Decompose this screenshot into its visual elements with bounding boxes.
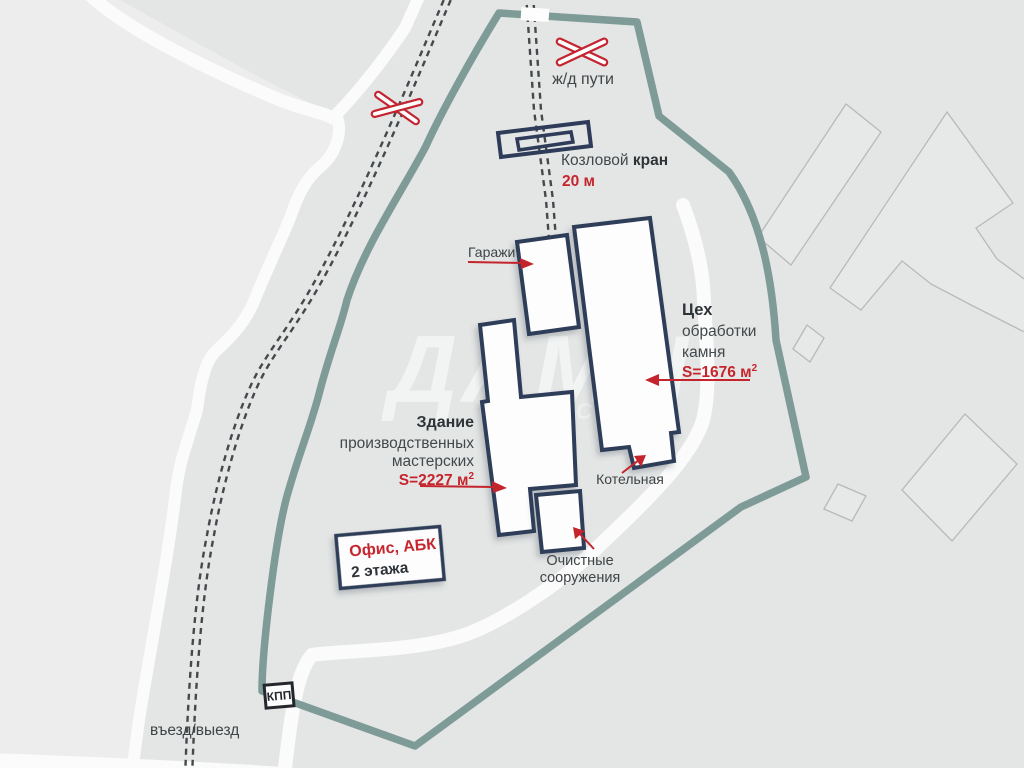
svg-text:Очистные: Очистные bbox=[546, 553, 613, 569]
svg-text:обработки: обработки bbox=[682, 323, 756, 340]
svg-text:КПП: КПП bbox=[266, 688, 292, 704]
svg-text:Цех: Цех bbox=[682, 301, 713, 319]
svg-text:камня: камня bbox=[682, 344, 725, 361]
svg-text:сооружения: сооружения bbox=[540, 570, 621, 586]
svg-text:Козловой кран: Козловой кран bbox=[561, 152, 668, 169]
svg-text:20 м: 20 м bbox=[562, 173, 595, 190]
svg-text:въезд/выезд: въезд/выезд bbox=[150, 722, 239, 739]
svg-text:Здание: Здание bbox=[417, 414, 475, 431]
svg-text:Гаражи: Гаражи bbox=[468, 244, 515, 260]
svg-text:производственных: производственных bbox=[340, 435, 475, 452]
svg-text:мастерских: мастерских bbox=[392, 453, 474, 470]
svg-text:S=1676 м2: S=1676 м2 bbox=[682, 363, 758, 381]
svg-text:Котельная: Котельная bbox=[596, 471, 664, 487]
svg-text:ж/д пути: ж/д пути bbox=[552, 71, 614, 88]
